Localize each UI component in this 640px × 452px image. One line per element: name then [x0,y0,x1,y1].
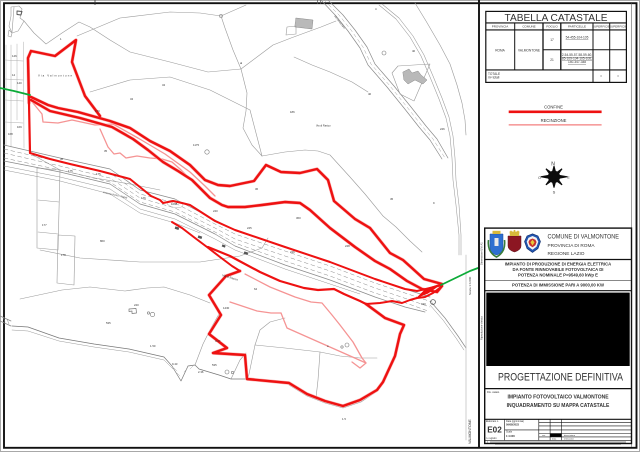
svg-text:1068: 1068 [171,202,178,206]
svg-text:09/08/2023: 09/08/2023 [506,423,520,427]
svg-text:Via di Rasico: Via di Rasico [316,125,331,128]
svg-text:176: 176 [141,196,146,200]
svg-text:3.47: 3.47 [215,339,221,343]
svg-text:POTENZA NOMINALE P=9549,60 kWp: POTENZA NOMINALE P=9549,60 kWp E [518,272,598,277]
svg-text:64: 64 [254,287,258,291]
svg-text:360: 360 [296,216,301,220]
svg-text:PARTICELLE: PARTICELLE [568,25,586,29]
svg-text:CONFINE: CONFINE [544,105,563,110]
svg-text:VALMONTONE: VALMONTONE [518,49,540,53]
svg-text:VALMONTONE: VALMONTONE [468,419,472,444]
svg-text:168: 168 [8,132,13,136]
svg-text:17: 17 [550,38,554,42]
svg-text:RECINZIONE: RECINZIONE [541,118,567,123]
svg-text:535: 535 [106,321,111,325]
svg-text:40: 40 [368,92,372,96]
svg-text:1175: 1175 [193,143,199,147]
svg-text:1:4.000: 1:4.000 [506,434,515,438]
svg-text:169: 169 [17,125,22,129]
svg-text:35: 35 [104,149,108,153]
svg-text:240: 240 [134,303,139,307]
svg-text:21: 21 [550,58,554,62]
svg-text:140: 140 [17,81,22,85]
svg-text:S: S [553,189,556,194]
svg-text:Riproduzione vietata: Riproduzione vietata [480,316,484,340]
svg-text:descrizione: descrizione [564,434,576,437]
svg-text:860: 860 [100,239,105,243]
svg-text:Scala: Scala [506,431,513,434]
svg-text:PROVINCIA: PROVINCIA [492,25,509,29]
svg-text:COMUNE: COMUNE [522,25,535,29]
svg-text:14: 14 [12,73,16,77]
svg-text:SUPERFICIE: SUPERFICIE [609,25,627,29]
svg-text:940: 940 [421,302,426,306]
svg-text:POTENZA DI IMMISSIONE PARI A 9: POTENZA DI IMMISSIONE PARI A 9000,00 KW [512,282,604,287]
svg-text:INQUADRAMENTO SU MAPPA CATASTA: INQUADRAMENTO SU MAPPA CATASTALE [507,403,610,409]
svg-text:1.5: 1.5 [342,417,346,421]
svg-text:FOGLIO: FOGLIO [546,25,558,29]
svg-text:246: 246 [290,250,295,254]
svg-text:34: 34 [162,83,166,87]
svg-text:Scala 1:4.000: Scala 1:4.000 [468,276,472,295]
svg-text:n. registro: n. registro [486,437,497,440]
svg-text:Via Valmontone: Via Valmontone [38,74,72,78]
svg-text:34: 34 [130,97,134,101]
svg-text:175: 175 [96,172,101,176]
svg-text:246: 246 [440,127,445,131]
svg-text:45: 45 [390,197,394,201]
svg-text:Dimensione UNI A1: Dimensione UNI A1 [480,242,484,265]
svg-text:36: 36 [255,187,259,191]
svg-text:Elaborato n.: Elaborato n. [486,420,499,423]
svg-text:emissione: emissione [564,439,575,441]
svg-text:146: 146 [12,54,17,58]
svg-text:IMPIANTO FOTOVOLTAICO VALMONTO: IMPIANTO FOTOVOLTAICO VALMONTONE [507,394,609,400]
svg-text:COMUNE DI VALMONTONE: COMUNE DI VALMONTONE [548,234,620,241]
svg-text:REGIONE LAZIO: REGIONE LAZIO [548,251,585,257]
svg-text:PROGETTAZIONE DEFINITIVA: PROGETTAZIONE DEFINITIVA [498,372,624,384]
svg-text:186: 186 [290,110,295,114]
svg-text:PROVINCIA DI ROMA: PROVINCIA DI ROMA [548,243,596,249]
svg-text:9.43: 9.43 [172,362,178,366]
svg-text:O: O [538,176,541,180]
svg-text:SUPERFICIE: SUPERFICIE [592,25,610,29]
svg-text:ROMA: ROMA [495,49,505,53]
svg-text:al: al [240,61,243,65]
svg-text:170: 170 [95,109,100,113]
svg-text:=: = [617,74,619,78]
svg-text:m² totali: m² totali [488,76,500,80]
svg-text:=: = [600,74,602,78]
svg-text:54-455-104-105: 54-455-104-105 [566,36,589,40]
svg-text:2.36: 2.36 [198,370,204,374]
svg-text:TABELLA CATASTALE: TABELLA CATASTALE [505,13,608,24]
svg-text:175: 175 [68,169,73,173]
svg-text:245: 245 [247,226,252,230]
svg-text:1.50: 1.50 [150,344,156,348]
svg-text:178: 178 [61,253,66,257]
svg-text:40: 40 [412,49,416,53]
svg-text:240: 240 [213,209,218,213]
svg-text:535: 535 [212,363,217,367]
svg-text:IMPIANTO DI PRODUZIONE DI ENER: IMPIANTO DI PRODUZIONE DI ENERGIA ELETTR… [505,262,612,267]
svg-text:140-347-348: 140-347-348 [568,60,586,64]
svg-text:36: 36 [60,157,64,161]
svg-text:1430: 1430 [223,306,230,310]
svg-text:248: 248 [345,244,350,248]
svg-text:Dis. catast.: Dis. catast. [487,390,500,394]
svg-text:rev.: rev. [542,434,546,437]
svg-text:N: N [551,161,555,167]
svg-text:DA FONTE RINNOVABILE FOTOVOLTA: DA FONTE RINNOVABILE FOTOVOLTAICA DI [513,267,604,272]
svg-text:177: 177 [42,223,47,227]
svg-text:E02: E02 [487,426,502,435]
